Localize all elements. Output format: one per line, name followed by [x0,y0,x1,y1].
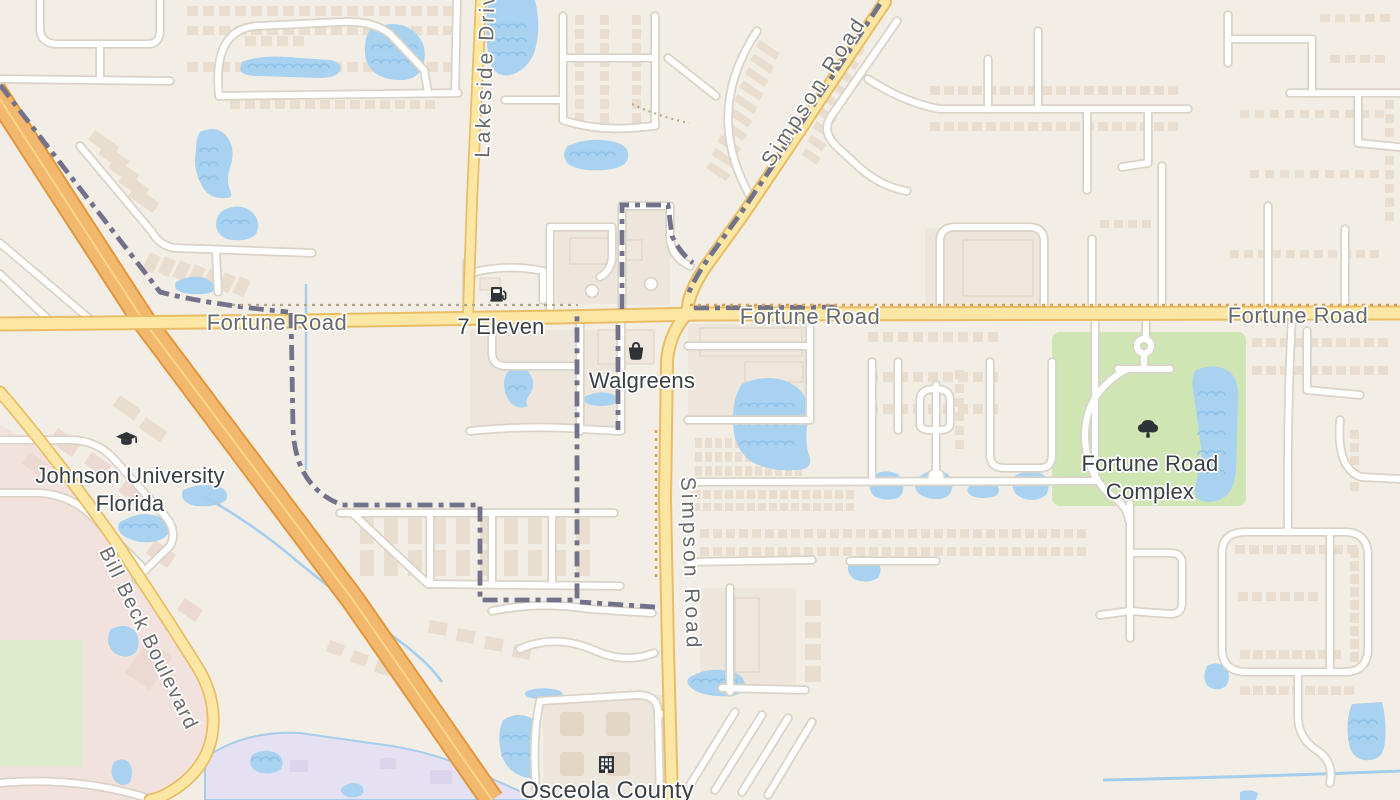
poi-label-johnson-university-line2[interactable]: Florida [96,491,165,516]
road-label-fortune-west: Fortune Road [207,310,348,335]
poi-label-fortune-complex-line1[interactable]: Fortune Road [1082,451,1219,476]
road-label-fortune-east: Fortune Road [1228,303,1369,328]
government-building-icon[interactable] [599,756,614,773]
map-container: Fortune Road Fortune Road Fortune Road S… [0,0,1400,800]
road-label-fortune-mid: Fortune Road [740,304,881,329]
poi-label-osceola-county[interactable]: Osceola County [520,777,694,800]
poi-label-fortune-complex-line2[interactable]: Complex [1106,479,1194,504]
poi-label-walgreens[interactable]: Walgreens [589,368,695,393]
map-canvas[interactable]: Fortune Road Fortune Road Fortune Road S… [0,0,1400,800]
poi-label-seven-eleven[interactable]: 7 Eleven [457,314,544,339]
poi-label-johnson-university-line1[interactable]: Johnson University [35,463,224,488]
